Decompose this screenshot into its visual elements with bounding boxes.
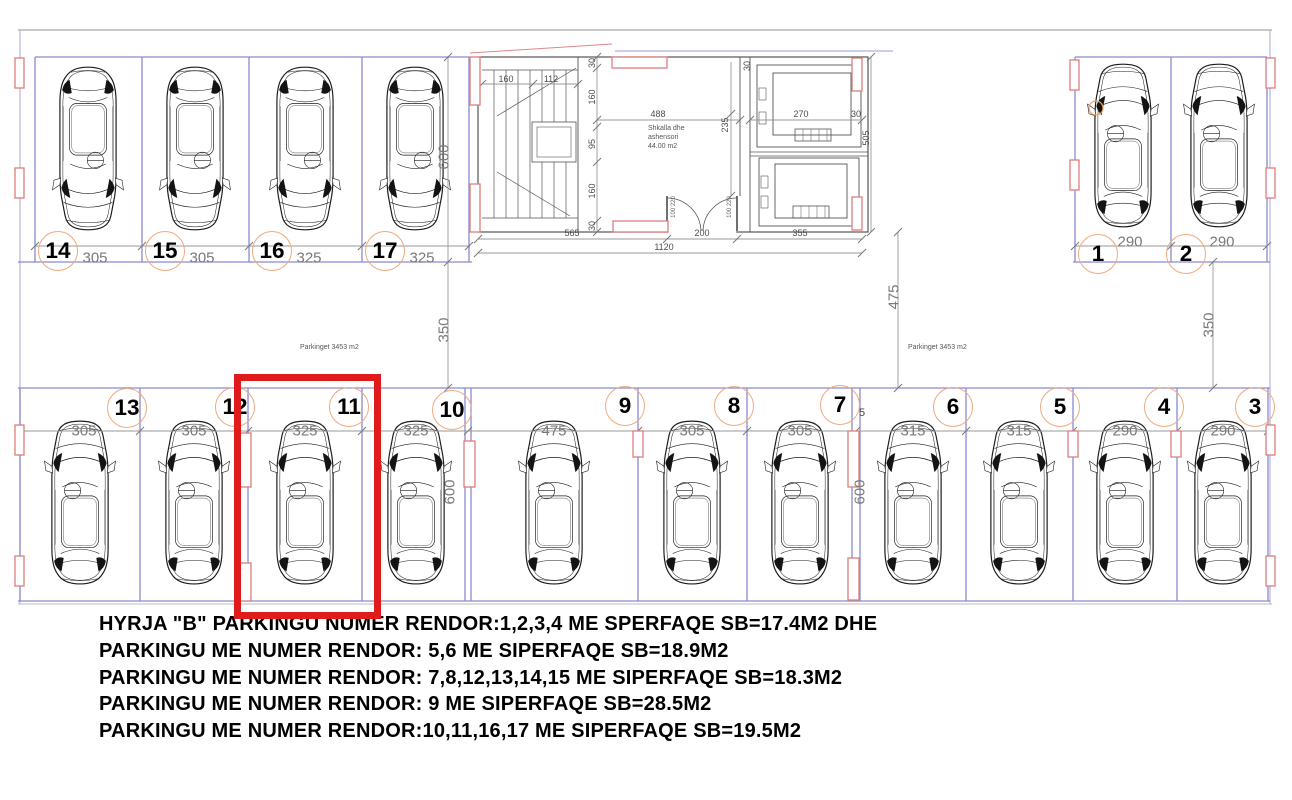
stall-width-label: 290 [1112,423,1137,440]
stall-badge-10[interactable]: 10 [432,390,472,430]
stall-width-label: 325 [403,423,428,440]
stall-width-label: 290 [1210,423,1235,440]
car-icon [1187,421,1258,584]
dim-label: 505 [861,130,871,145]
dim-label: 30 [587,58,597,68]
car-icon [764,421,835,584]
dim-label: 270 [793,109,808,119]
stall-badge-16[interactable]: 16 [252,231,292,271]
car-icon [158,421,229,584]
stall-width-label: 305 [71,423,96,440]
core-room-label: Shkalla dhe ashensori 44.00 m2 [648,124,685,151]
dim-label: 475 [886,284,903,309]
stall-width-label: 325 [409,250,434,267]
car-icon [1184,64,1255,227]
elevator-icon [759,158,859,226]
car-icon [1089,421,1160,584]
dim-label: 200 [694,228,709,238]
parking-area-label: Parkinget 3453 m2 [908,343,967,352]
stall-width-label: 315 [1006,423,1031,440]
note-line: PARKINGU ME NUMER RENDOR:10,11,16,17 ME … [99,718,877,745]
door-dim-label: 100 220 [727,196,733,218]
stall-badge-5[interactable]: 5 [1040,387,1080,427]
stall-width-label: 305 [787,423,812,440]
stall-badge-17[interactable]: 17 [365,231,405,271]
stall-width-label: 290 [1117,234,1142,251]
stall-width-label: 305 [679,423,704,440]
stall-width-label: 315 [900,423,925,440]
stall-badge-1[interactable]: 1 [1078,234,1118,274]
car-icon [53,67,124,230]
dim-label: 112 [544,74,558,84]
stall-width-label: 475 [541,423,566,440]
car-icon [518,421,589,584]
dim-label: 95 [587,139,597,149]
stall-badge-15[interactable]: 15 [145,231,185,271]
dim-label: 160 [587,183,597,198]
dim-label: 30 [851,109,861,119]
dim-label: 350 [1201,312,1218,337]
dim-label: 30 [742,61,752,71]
note-line: PARKINGU ME NUMER RENDOR: 7,8,12,13,14,1… [99,665,877,692]
car-icon [1088,64,1159,227]
stall-width-label: 305 [82,250,107,267]
dim-label: 488 [650,109,665,119]
stall-badge-13[interactable]: 13 [107,388,147,428]
dim-label: 5 [859,407,865,419]
elevator-icon [757,65,861,147]
car-icon [656,421,727,584]
car-icon [983,421,1054,584]
dim-label: 1120 [654,242,673,252]
dim-label: 565 [564,228,579,238]
parking-area-label: Parkinget 3453 m2 [300,343,359,352]
car-icon [44,421,115,584]
highlight-box[interactable] [234,374,381,619]
stall-badge-8[interactable]: 8 [714,386,754,426]
dim-label: 350 [436,317,453,342]
note-line: HYRJA "B" PARKINGU NUMER RENDOR:1,2,3,4 … [99,611,877,638]
notes-block: HYRJA "B" PARKINGU NUMER RENDOR:1,2,3,4 … [99,611,877,745]
stall-width-label: 290 [1209,234,1234,251]
dim-label: 600 [436,144,453,169]
dim-label: 600 [442,479,459,504]
car-icon [270,67,341,230]
car-icon [877,421,948,584]
stall-badge-6[interactable]: 6 [933,387,973,427]
stall-badge-2[interactable]: 2 [1166,234,1206,274]
parking-floor-plan: 14 305 15 305 16 325 17 325 1 290 2 290 … [0,0,1292,800]
dim-label: 160 [587,89,597,104]
car-icon [160,67,231,230]
note-line: PARKINGU ME NUMER RENDOR: 5,6 ME SIPERFA… [99,638,877,665]
stall-width-label: 325 [296,250,321,267]
stall-badge-9[interactable]: 9 [605,386,645,426]
door-dim-label: 100 220 [671,196,677,218]
dim-label: 30 [587,221,597,231]
dim-label: 160 [498,74,513,84]
stall-width-label: 305 [181,423,206,440]
dim-label: 235 [720,117,730,132]
note-line: PARKINGU ME NUMER RENDOR: 9 ME SIPERFAQE… [99,691,877,718]
stall-badge-7[interactable]: 7 [820,385,860,425]
stall-badge-3[interactable]: 3 [1235,387,1275,427]
stall-badge-14[interactable]: 14 [38,231,78,271]
stall-badge-4[interactable]: 4 [1144,387,1184,427]
dim-label: 600 [852,479,869,504]
dim-label: 355 [792,228,807,238]
stall-width-label: 305 [189,250,214,267]
